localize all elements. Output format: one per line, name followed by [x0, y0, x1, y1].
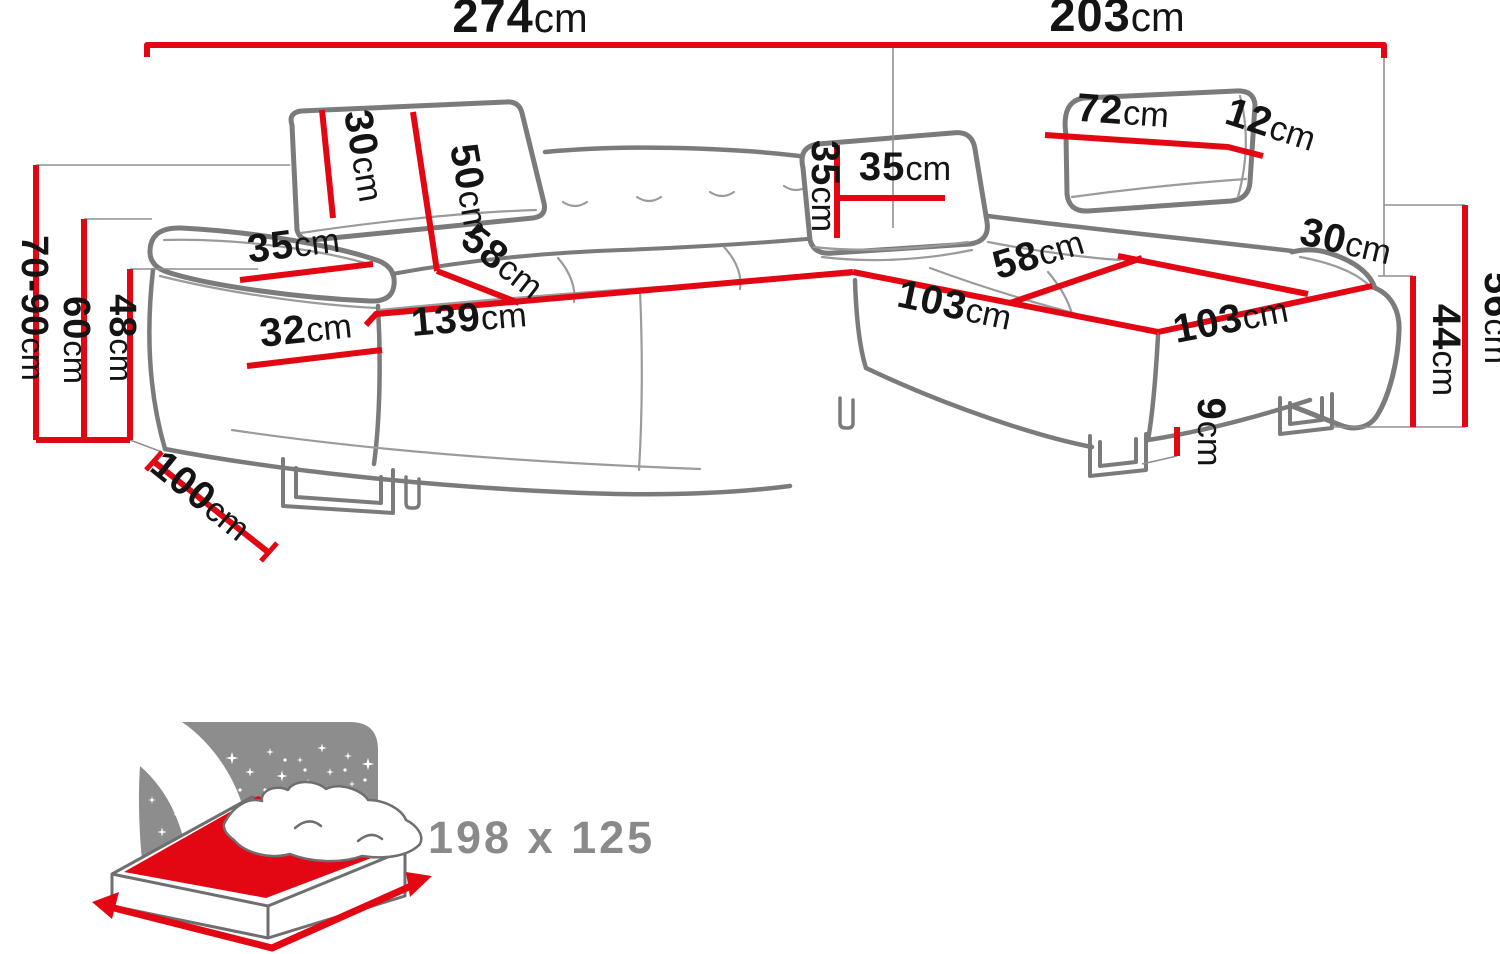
corner-foot [840, 398, 853, 428]
dim-line-30-right [1118, 256, 1308, 294]
left-armrest-right-edge [374, 306, 380, 464]
dim-label-35-pillow-h: 35cm [859, 145, 951, 189]
dim-label-30-right: 30cm [1296, 210, 1396, 274]
dim-label-274: 274cm [452, 0, 587, 42]
chaise-left-foot-inner [1100, 439, 1136, 466]
dim-label-56: 56cm [1476, 272, 1500, 364]
left-foot-frame-outer [283, 459, 393, 513]
dim-label-48: 48cm [101, 294, 143, 382]
dim-line-274 [147, 45, 893, 57]
backrest-tuft-3 [710, 192, 734, 196]
bed-arrowhead-left [92, 892, 119, 919]
backrest-tuft-2 [637, 197, 661, 201]
dim-label-35-pillow-v: 35cm [803, 140, 847, 232]
bed-arrowhead-right [406, 872, 432, 897]
dim-line-203 [893, 45, 1384, 58]
dim-label-139: 139cm [409, 291, 528, 345]
dim-label-203: 203cm [1049, 0, 1184, 41]
dim-label-32: 32cm [257, 302, 353, 355]
dim-label-58-right: 58cm [988, 219, 1089, 288]
sofa-dimension-diagram: 274cm 203cm 70-90cm 60cm 48cm 30cm 50cm … [0, 0, 1500, 954]
dim-label-70-90: 70-90cm [13, 235, 55, 381]
chaise-left-bottom-edge [866, 368, 1092, 447]
left-armrest-left-edge [149, 270, 165, 449]
ext-bottom-left [130, 440, 162, 452]
sleeping-area-label: 198 x 125 [428, 812, 655, 863]
dim-label-100: 100cm [142, 442, 260, 549]
dim-label-9: 9cm [1189, 397, 1233, 466]
diagram-canvas: 274cm 203cm 70-90cm 60cm 48cm 30cm 50cm … [0, 0, 1500, 954]
backrest-tuft-1 [563, 202, 587, 206]
dim-label-44: 44cm [1424, 304, 1468, 396]
chaise-left-face-edge [855, 280, 866, 368]
sleeping-area-icon [92, 722, 432, 948]
dim-label-103-right: 103cm [1170, 287, 1292, 352]
dim-label-60: 60cm [55, 296, 97, 384]
dim-label-103-left: 103cm [894, 272, 1016, 339]
left-front-face-seam [639, 290, 642, 470]
chaise-front-right-edge [1148, 336, 1158, 440]
left-base-mechanism-seam [232, 430, 700, 469]
